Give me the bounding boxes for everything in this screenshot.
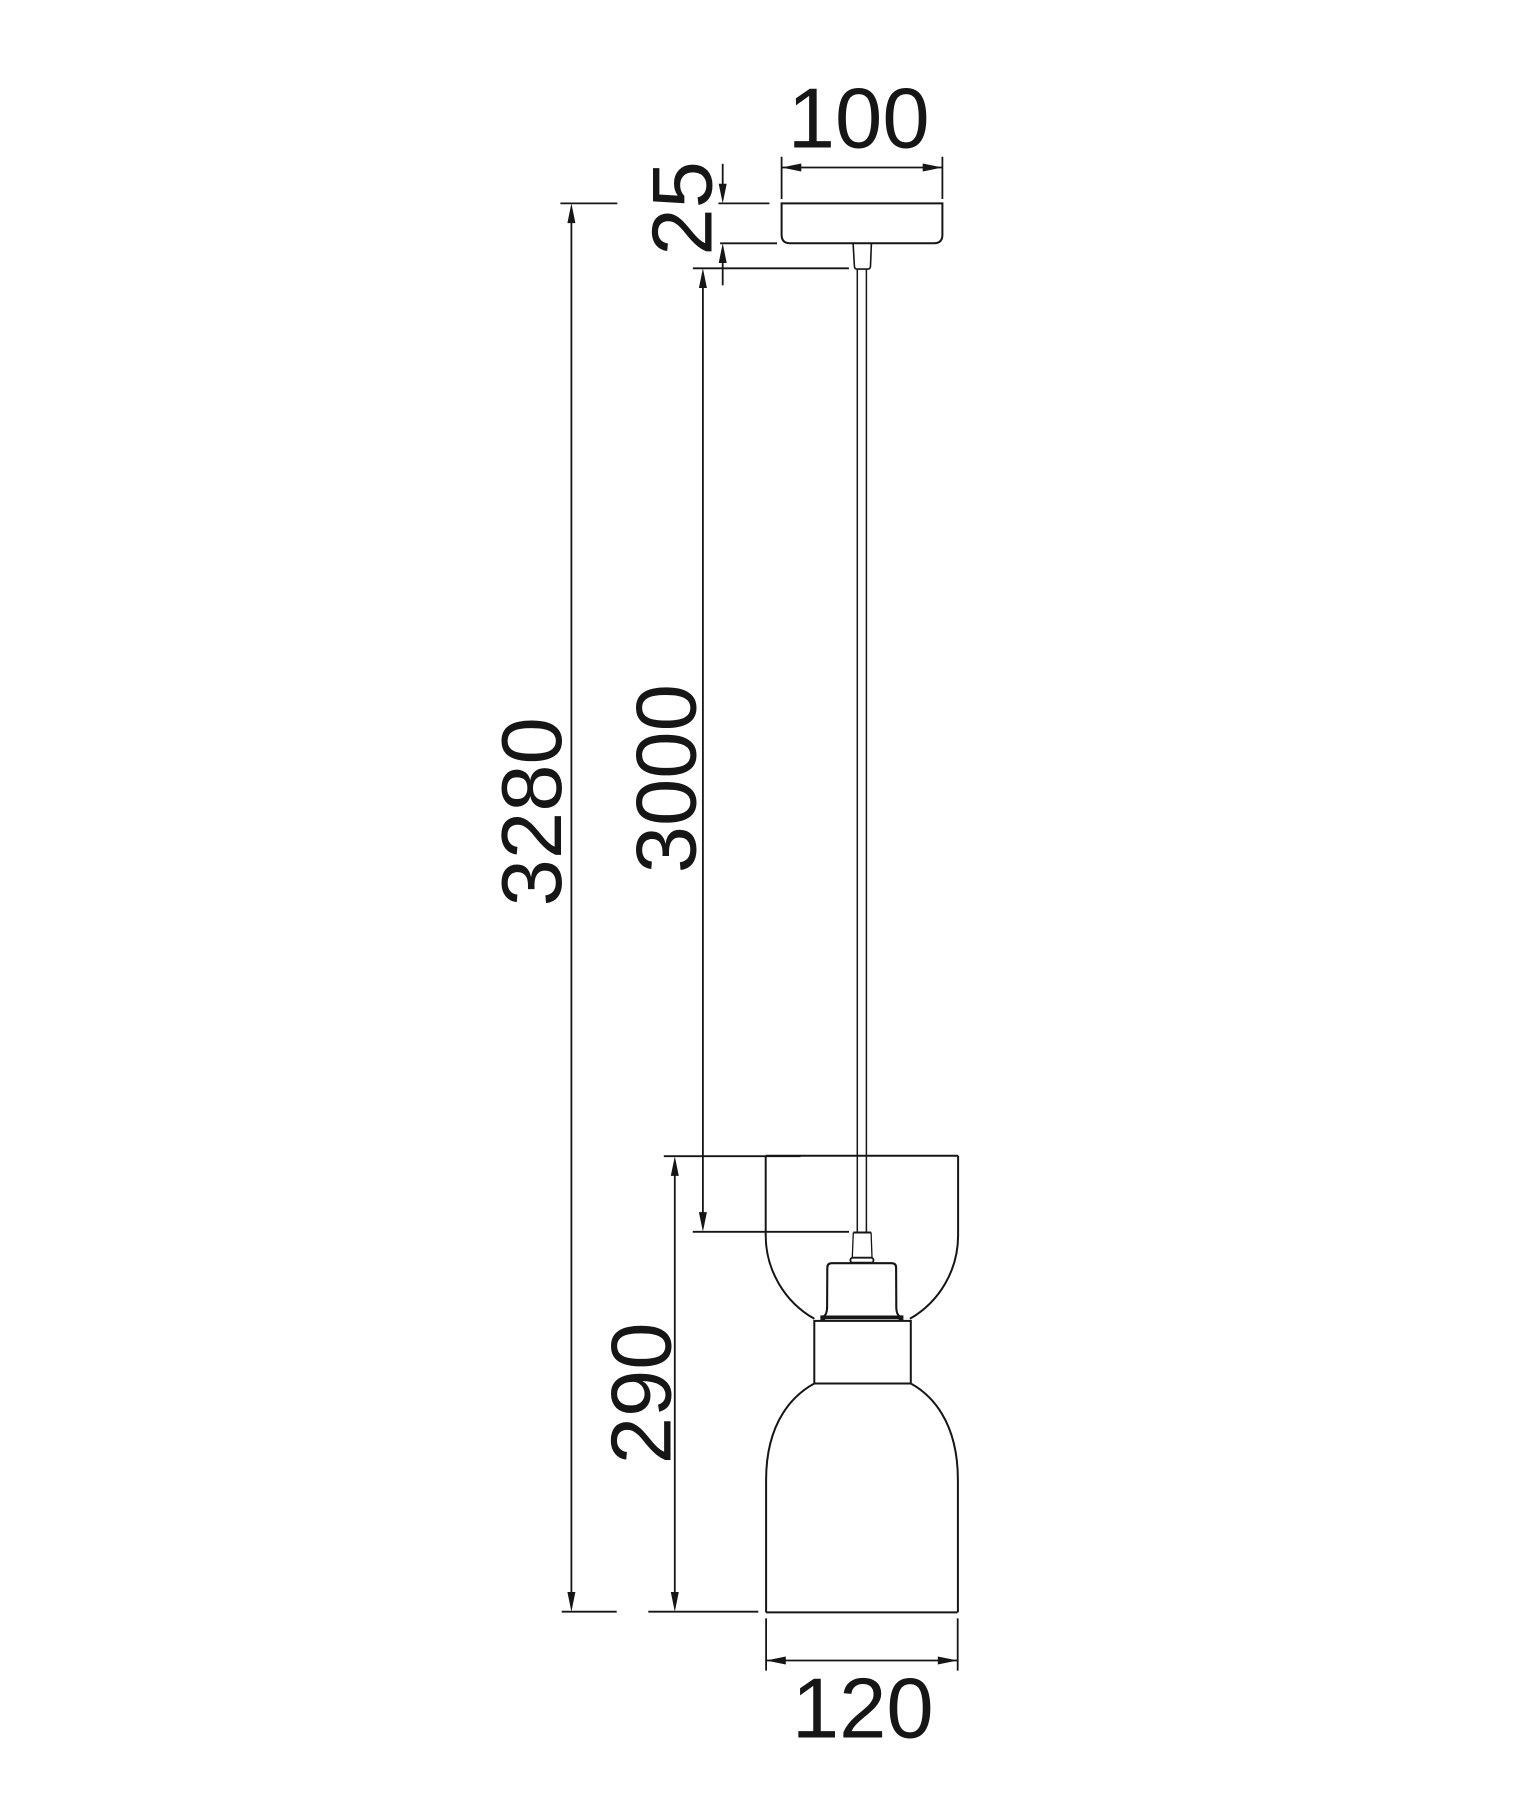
svg-text:100: 100 <box>788 72 930 167</box>
svg-text:25: 25 <box>636 161 731 256</box>
svg-text:3000: 3000 <box>620 684 715 873</box>
svg-text:120: 120 <box>792 1662 934 1757</box>
svg-text:3280: 3280 <box>485 717 580 906</box>
